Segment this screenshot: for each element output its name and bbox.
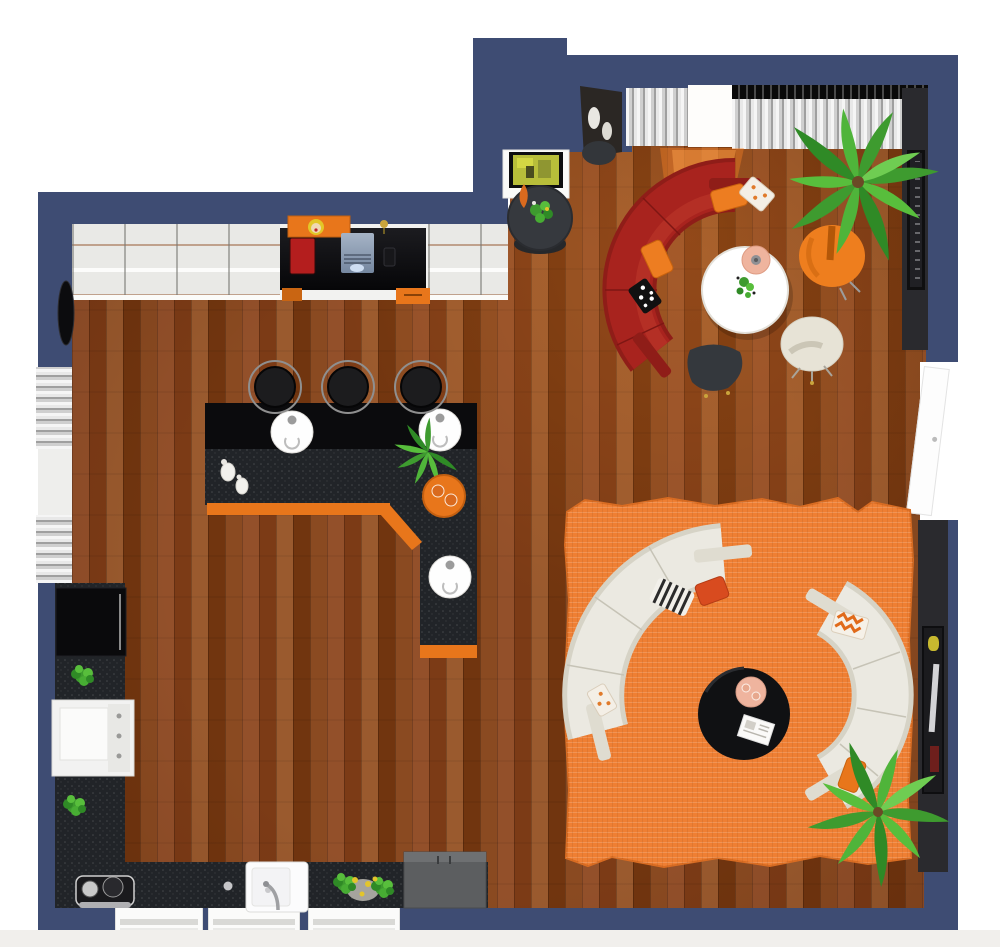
window-top-left-2 — [428, 222, 508, 300]
curtain-rail-dark — [732, 85, 928, 100]
curtain-top-2 — [732, 99, 928, 149]
wall-behind-desk — [280, 222, 430, 300]
door-knob — [932, 437, 938, 443]
outside-area — [0, 0, 510, 222]
art-detail — [915, 161, 920, 279]
door-opening-top[interactable] — [688, 85, 734, 147]
framed-art-right-bottom[interactable] — [922, 626, 944, 794]
page-edge — [0, 930, 1000, 947]
floor-plan-canvas — [0, 0, 1000, 947]
window-sill — [213, 919, 295, 925]
window-sill — [120, 919, 198, 925]
art-red-blob — [930, 746, 939, 772]
window-top-left — [72, 222, 280, 300]
window-left-glass — [36, 449, 72, 515]
wall-right-upper — [926, 55, 958, 362]
curtain-left-bottom — [36, 515, 72, 583]
wall-left-lower — [38, 583, 58, 912]
wall-left-upper — [38, 192, 72, 367]
window-sill — [313, 919, 395, 925]
art-white-figure — [929, 664, 940, 732]
wall-entry-block — [473, 38, 567, 192]
wall-top-right — [565, 55, 934, 88]
curtain-left-top — [36, 367, 72, 449]
framed-art-right-top[interactable] — [907, 150, 925, 290]
art-yellow-blob — [928, 636, 939, 651]
curtain-top-1 — [626, 88, 688, 146]
wall-top-left — [38, 192, 508, 224]
